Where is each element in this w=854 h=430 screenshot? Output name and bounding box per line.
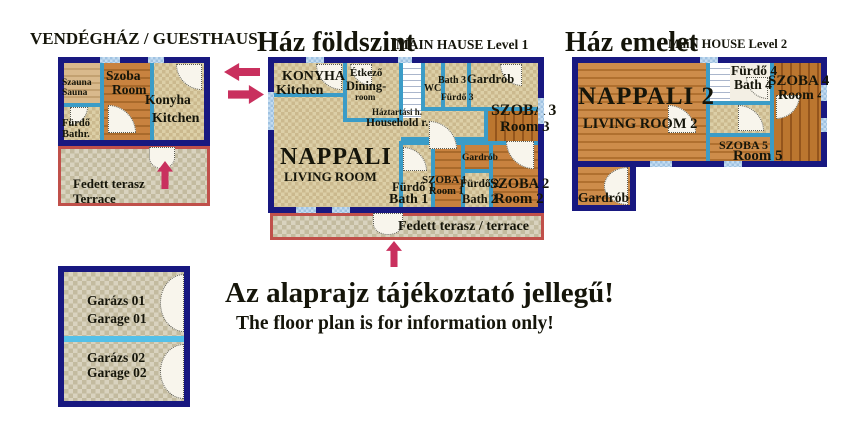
room-label-sauna: SzaunaSauna: [62, 79, 92, 98]
window-marker: [650, 161, 672, 167]
window-marker: [724, 161, 742, 167]
room-label-szoba1-en: Room 1: [429, 187, 464, 198]
room-label-szoba3-hu: SZOBA 3: [491, 103, 556, 119]
guesthouse-title: VENDÉGHÁZ / GUESTHAUS: [30, 30, 258, 47]
floor-plan-canvas: VENDÉGHÁZ / GUESTHAUS Ház földszint MAIN…: [0, 0, 854, 430]
window-marker: [100, 57, 120, 63]
room-label-szoba2-hu: SZOBA 2: [490, 177, 549, 192]
room-label-szoba4-en: Room 4: [778, 89, 824, 103]
main-level1-subtitle: MAIN HAUSE Level 1: [396, 38, 528, 52]
entrance-arrow-up: [386, 241, 402, 267]
garage-plan: Garázs 01 Garage 01 Garázs 02 Garage 02: [58, 266, 190, 407]
room-label-konyha: Konyha: [145, 93, 191, 107]
main-level1-terrace: Fedett terasz / terrace: [270, 213, 544, 240]
window-marker: [148, 57, 164, 63]
window-marker: [821, 85, 827, 101]
room-label-szoba: SzobaRoom: [106, 69, 147, 97]
room-label-household-en: Household r.: [366, 118, 428, 130]
room-label-nappali2: NAPPALI 2: [578, 84, 715, 110]
room-label-nappali: NAPPALI: [280, 145, 392, 169]
garage1-label-hu: Garázs 01: [87, 294, 145, 308]
terrace-label-en: Terrace: [73, 192, 116, 205]
window-marker: [398, 57, 412, 63]
garage2-label-hu: Garázs 02: [87, 351, 145, 365]
door-arc: [176, 64, 202, 90]
room-label-living2: LIVING ROOM 2: [583, 117, 697, 132]
room-label-wardrobe-top: Gardrób: [467, 73, 514, 86]
garage-divider: [64, 336, 184, 342]
disclaimer-hu: Az alaprajz tájékoztató jellegű!: [225, 279, 614, 309]
main-level1-plan: KONYHA Kitchen Étkező Dining- room WC Ba…: [268, 57, 544, 213]
room-label-guest-bath: FürdőBathr.: [62, 119, 90, 140]
terrace-label-l1: Fedett terasz / terrace: [398, 220, 529, 234]
room-label-bath4-en: Bath 4: [734, 78, 772, 92]
room-label-dining-en1: Dining-: [346, 80, 386, 93]
room-label-bath3-hu: Fürdő 3: [441, 94, 473, 104]
door-arc: [429, 121, 457, 149]
window-marker: [538, 98, 544, 124]
main-level2-plan: NAPPALI 2 LIVING ROOM 2 Fürdő 4 Bath 4 S…: [572, 57, 827, 167]
room-label-wardrobe-mid: Gardrób: [462, 154, 498, 164]
room-label-kitchen-l1: Kitchen: [276, 84, 323, 98]
disclaimer-en: The floor plan is for information only!: [236, 314, 554, 334]
room-label-dining-hu: Étkező: [350, 68, 382, 79]
room-label-dining-en2: room: [355, 93, 375, 102]
room-label-bath2-en: Bath 2: [462, 193, 497, 206]
room-label-bath1-en: Bath 1: [389, 193, 428, 207]
main-level2-subtitle: MaiN HOUSE Level 2: [668, 38, 787, 51]
room-label-household-hu: Háztartási h.: [372, 108, 422, 117]
terrace-label-hu: Fedett terasz: [73, 177, 145, 190]
entrance-arrow-right: [228, 85, 264, 104]
entrance-arrow-left: [224, 63, 260, 81]
room-label-bath3-en: Bath 3: [438, 76, 466, 86]
window-marker: [821, 118, 827, 132]
garage1-label-en: Garage 01: [87, 312, 147, 326]
guesthouse-plan: SzaunaSauna SzobaRoom Konyha Kitchen Für…: [58, 57, 210, 146]
room-label-wardrobe-l2: Gardrób: [578, 191, 629, 205]
window-marker: [700, 57, 718, 63]
room-label-kitchen: Kitchen: [152, 112, 199, 126]
room-label-szoba2-en: Room 2: [494, 192, 544, 207]
garage2-label-en: Garage 02: [87, 366, 147, 380]
main-level2-wardrobe: Gardrób: [572, 161, 636, 211]
window-marker: [306, 57, 324, 63]
room-label-living-room: LIVING ROOM: [284, 170, 377, 183]
window-marker: [268, 92, 274, 130]
door-arc: [160, 344, 184, 399]
guesthouse-terrace: Fedett terasz Terrace: [58, 146, 210, 206]
door-arc: [160, 274, 184, 332]
main-level1-title: Ház földszint: [257, 29, 415, 58]
